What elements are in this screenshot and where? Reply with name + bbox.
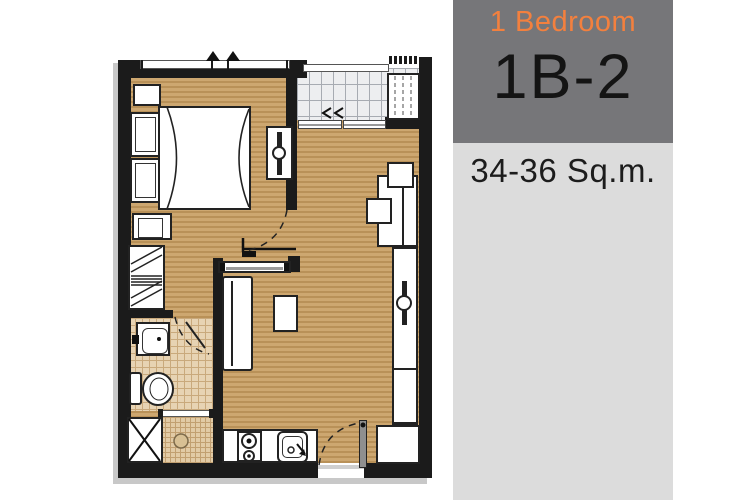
unit-area-label: 34-36 Sq.m. [453, 152, 673, 190]
sofa [222, 276, 253, 371]
desk-chair [366, 198, 392, 224]
kitchen-sink [277, 431, 308, 463]
unit-category-label: 1 Bedroom [490, 6, 636, 39]
window-mullion [141, 60, 143, 69]
stove [237, 431, 262, 462]
bedroom-sliding-door-leaf [218, 261, 291, 273]
wardrobe-section [130, 158, 161, 203]
balcony-sliding-door-panel [298, 120, 342, 129]
louvered-closet [128, 245, 165, 310]
nightstand [133, 84, 161, 106]
wall-under-window [140, 68, 290, 78]
louver-tick [394, 56, 397, 64]
wall-bathroom-top [128, 310, 173, 318]
balcony-sliding-door-panel [343, 120, 386, 129]
window-mullion [227, 60, 229, 69]
bathroom-sink [136, 322, 170, 356]
window-mullion [211, 60, 213, 69]
entry-threshold [318, 465, 364, 469]
shower-floor [160, 417, 213, 463]
bedside-bench [132, 213, 172, 240]
unit-header-panel: 1 Bedroom 1B-2 [453, 0, 673, 143]
louver-tick [399, 56, 402, 64]
entry-door-leaf [359, 420, 367, 468]
bed [158, 106, 251, 210]
ac-compressor-unit [387, 73, 420, 120]
unit-code-label: 1B-2 [492, 41, 633, 113]
louver-tick [414, 56, 417, 64]
louver-tick [389, 56, 392, 64]
wall-bottom-right [364, 463, 432, 478]
louver-tick [404, 56, 407, 64]
wall-right [419, 57, 432, 478]
shower-glass-partition [158, 410, 215, 417]
wardrobe-section [130, 112, 161, 157]
bathroom-faucet [132, 335, 139, 344]
wall-bottom-left [118, 463, 318, 478]
floorplan-page: 1 Bedroom 1B-2 34-36 Sq.m. [0, 0, 750, 500]
shower-partition-cap [209, 409, 215, 418]
balcony-railing [303, 64, 389, 72]
service-shaft [127, 417, 163, 463]
built-in-cabinet-strip [392, 247, 418, 425]
coffee-table [273, 295, 298, 332]
tv-screen-bedroom [277, 132, 282, 175]
desk-top-box [387, 162, 414, 188]
bedroom-window [140, 60, 290, 69]
tv-screen-living [402, 281, 407, 325]
window-mullion [286, 60, 288, 69]
unit-area-panel: 34-36 Sq.m. [453, 143, 673, 500]
entry-shoe-cabinet [376, 425, 420, 464]
louver-tick [409, 56, 412, 64]
